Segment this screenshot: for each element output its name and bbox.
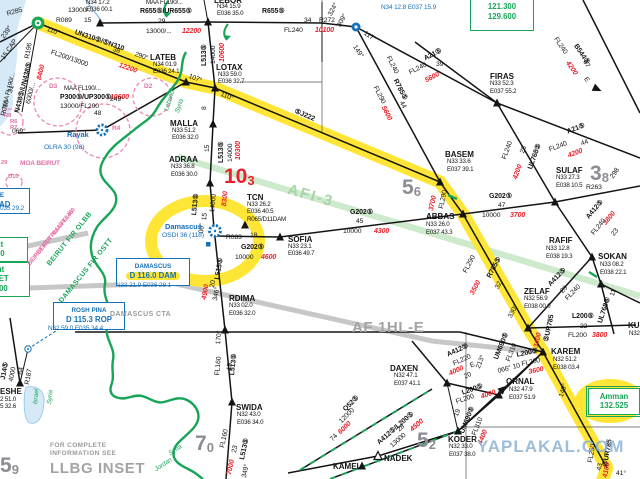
map-label: E036 35.0 (217, 11, 243, 18)
enroute-chart: YAPLAKAL.COM R285R0891513000/...N34 17.2… (0, 0, 640, 479)
map-label: N32 47.1 (394, 373, 418, 380)
grid-mora-number: 59 (0, 455, 19, 477)
map-label: 19 (226, 363, 234, 371)
map-label: L513⑤ (201, 44, 208, 66)
map-label: D10 (8, 174, 18, 180)
mora-hundreds: 3 (247, 173, 254, 188)
freq-box-topright: 121.300129.600 (470, 0, 534, 31)
map-label: 170° (215, 330, 224, 344)
map-label: 48 (94, 110, 101, 117)
map-label: 10000 (482, 212, 500, 219)
grid-mora-number: 56 (402, 177, 421, 199)
map-label: E038 00.0 (524, 304, 550, 311)
map-label: E036 32.7 (218, 79, 244, 86)
map-label: R4 (112, 126, 120, 133)
map-label: 14000 (227, 144, 234, 162)
map-label: R263 (586, 184, 602, 191)
map-label: 4600 (261, 254, 276, 261)
map-label: 249° (110, 96, 124, 103)
map-label: 3700 (510, 212, 525, 219)
map-label: E037 55.2 (490, 89, 516, 96)
beirut-box-2: irutLMET6.000 (0, 262, 30, 297)
map-label: N32 56.9 (524, 296, 548, 303)
map-label: OSDI 36 (118) (162, 232, 204, 239)
map-label: LLBG INSET (50, 461, 145, 477)
mora-thousands: 5 (417, 429, 429, 452)
map-label: N32 (629, 331, 640, 338)
map-label: 18 (250, 232, 257, 239)
map-label: N32 33.0 (449, 444, 473, 451)
map-label: 10000 (343, 228, 361, 235)
map-label: 22 (580, 323, 587, 330)
map-label: N33 33.6 (447, 159, 471, 166)
map-label: E036 49.7 (288, 251, 314, 258)
map-label: R272 (319, 17, 335, 24)
box-line: LMET (0, 275, 9, 283)
map-label: MAA FL190/... (64, 86, 101, 93)
map-label: E037 51.9 (509, 395, 535, 402)
map-label: N33 12.8 (546, 246, 570, 253)
box-line: irut (0, 266, 4, 274)
map-label: E036 40.5 (247, 209, 273, 216)
map-label: 10100 (315, 27, 334, 34)
map-label: R655⑤ (262, 8, 285, 15)
map-label: R065/D11DAM (247, 217, 286, 224)
map-label: N32 43.0 (237, 412, 261, 419)
map-label: R083 (226, 234, 242, 241)
map-label: 29 (1, 160, 7, 166)
map-label: E038 22.1 (600, 270, 626, 277)
map-label: E037 38.0 (449, 452, 475, 459)
map-label: N33 02.0 (229, 303, 253, 310)
box-line: D 116.0 DAM (126, 272, 181, 280)
map-label: N32 59.0 E035 34.4 (48, 326, 103, 333)
map-label: 23 (231, 445, 240, 454)
map-label: Damascus (165, 223, 202, 231)
map-label: Rayak (67, 131, 89, 139)
map-label: D2 (144, 84, 152, 91)
mora-hundreds: 6 (414, 184, 421, 199)
map-label: 10000 (235, 254, 253, 261)
map-label: E038 10.5 (556, 183, 582, 190)
map-label: 3800 (592, 332, 607, 339)
map-label: OLRA 30 (98) (44, 144, 84, 151)
map-label: L200⑤ (572, 313, 594, 320)
map-label: N33 52.3 (490, 81, 514, 88)
mora-hundreds: 2 (429, 437, 436, 452)
map-label: 39 (436, 61, 443, 68)
map-label: G202⑤ (489, 193, 512, 200)
map-label: N32 47.9 (509, 387, 533, 394)
mora-thousands: 3 (590, 162, 602, 185)
mora-thousands: 5 (0, 454, 12, 477)
box-line: E (0, 193, 4, 200)
mora-thousands: 7 (195, 432, 207, 455)
map-label: 10600 (219, 43, 226, 62)
map-label: N33 08.2 (600, 262, 624, 269)
map-label: 4300 (374, 228, 389, 235)
box-line: 121.300 (488, 3, 516, 11)
map-label: 10300 (235, 141, 242, 160)
grid-mora-number: 70 (195, 433, 214, 455)
airway-lines (0, 0, 640, 479)
box-line: D 115.3 ROP (66, 316, 112, 324)
box-line: ROSH PINA (72, 308, 107, 315)
box-line: .300 (0, 250, 5, 258)
map-label: AF 1HL-E (352, 320, 424, 336)
mora-hundreds: 0 (207, 440, 214, 455)
map-label: N32 51.2 (553, 357, 577, 364)
map-label: G202⑤ (241, 244, 264, 251)
map-label: 15 (204, 145, 211, 152)
map-label: 12200 (182, 28, 201, 35)
map-label: FL200 (568, 332, 587, 339)
map-label: E037 41.1 (394, 381, 420, 388)
map-label: E036 32.0 (229, 311, 255, 318)
map-label: P300⑤/UP300⑤ (60, 94, 111, 101)
map-label: G202⑤ (350, 209, 373, 216)
map-label: N33 21.9 E036 28.1 (116, 283, 171, 290)
box-line: Amman (600, 393, 629, 401)
map-label: MAA FL190/... (146, 0, 183, 7)
map-label: NADEK (384, 455, 412, 463)
map-label: E036 00.1 (86, 7, 112, 14)
map-label: 035 29.2 (0, 206, 24, 213)
map-label: 47 (498, 202, 505, 209)
map-label: E038 19.3 (546, 254, 572, 261)
chart-graphics (0, 0, 640, 479)
grid-mora-number: 103 (224, 166, 255, 188)
map-label: N33 36.8 (171, 164, 195, 171)
map-label: L513⑤ (218, 141, 225, 163)
map-label: R7 (10, 125, 17, 131)
map-label: DAMASCUS CTA (110, 311, 171, 318)
map-label: 15 (84, 17, 91, 24)
map-label: E036 32.0 (172, 135, 198, 142)
watermark: YAPLAKAL.COM (477, 437, 624, 457)
amman-freq-box: Amman132.525 (588, 388, 640, 415)
map-label: E038 03.4 (553, 365, 579, 372)
map-label: 14000 (210, 46, 217, 64)
map-label: KAMEL (333, 463, 361, 471)
map-label: E036 24.1 (153, 69, 179, 76)
map-label: N33 26.0 (426, 222, 450, 229)
grid-mora-number: 38 (590, 163, 609, 185)
map-label: MOA BEIRUT (20, 161, 60, 168)
map-label: 8300 (221, 191, 230, 207)
map-label: FOR COMPLETE (50, 443, 106, 450)
map-label: 45 (356, 218, 363, 225)
box-line: 6.000 (0, 285, 8, 293)
map-label: INFORMATION SEE (50, 451, 116, 458)
box-line: 132.525 (600, 402, 628, 410)
map-label: N33 27.3 (556, 175, 580, 182)
cta-boundary-bands (0, 233, 540, 352)
map-label: 41° (616, 470, 626, 477)
map-label: 34 (304, 17, 311, 24)
mora-thousands: 10 (224, 165, 247, 188)
mora-thousands: 5 (402, 176, 414, 199)
map-label: 15 (201, 213, 209, 221)
box-line: DAMASCUS (135, 264, 171, 271)
box-line: irut (0, 241, 3, 249)
map-label: D3 (49, 84, 57, 91)
map-label: 5 32.6 (0, 404, 16, 411)
map-label: N34 12.8 E037 15.9 (381, 5, 436, 12)
map-label: E037 43.3 (426, 230, 452, 237)
mora-hundreds: 9 (12, 462, 19, 477)
map-label: 29 (158, 18, 165, 25)
map-label: 84 (17, 367, 25, 376)
map-label: E036 34.0 (237, 420, 263, 427)
map-label: R089 (56, 17, 72, 24)
box-line: 129.600 (488, 13, 516, 21)
beirut-box-1: irut.300 (0, 237, 28, 262)
grid-mora-number: 52 (417, 430, 436, 452)
damascus-airport-icon (206, 242, 211, 247)
mora-hundreds: 8 (602, 170, 609, 185)
map-label: R655⑤/UR655⑤ (140, 8, 192, 15)
map-label: E036 30.0 (171, 172, 197, 179)
map-label: FL240 (284, 27, 303, 34)
map-label: 8 (201, 106, 208, 110)
map-label: 13000/... (146, 28, 172, 35)
map-label: E037 39.1 (447, 167, 473, 174)
